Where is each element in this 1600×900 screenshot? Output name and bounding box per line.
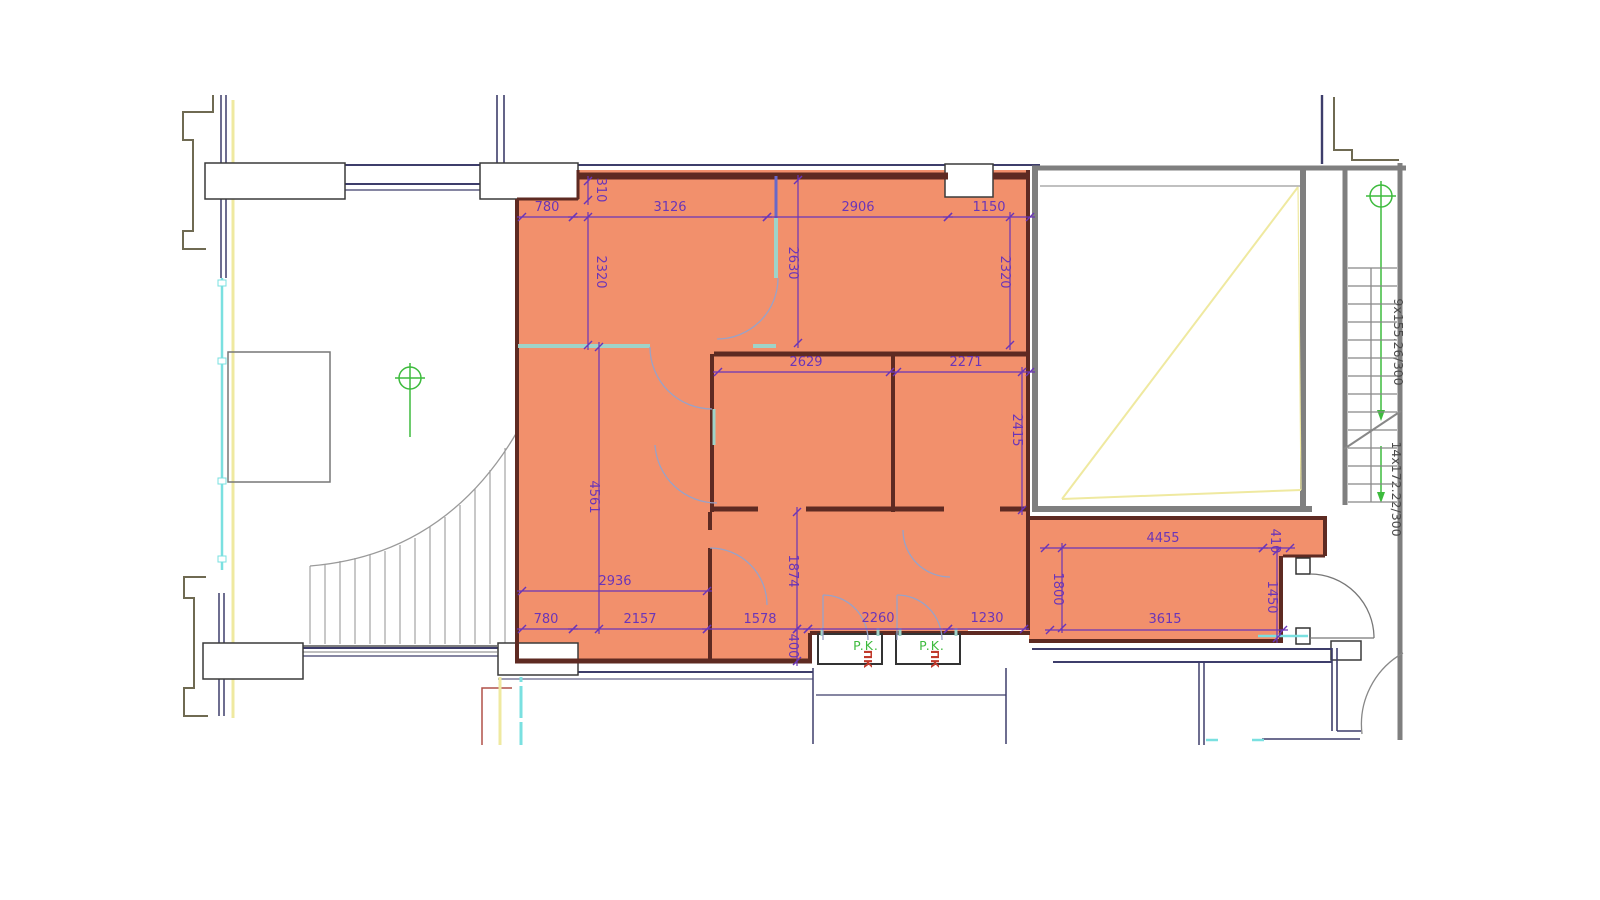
dimension-label: 1150 — [972, 200, 1005, 215]
dimension-label: 1450 — [1264, 580, 1279, 613]
dimension-label: 4455 — [1146, 531, 1179, 546]
fold-mark-yellow — [1062, 187, 1298, 499]
dimension-label: 410 — [1267, 529, 1282, 554]
dimension-label: 2157 — [623, 612, 656, 627]
neighbor-door-arc — [1361, 653, 1403, 734]
survey-marker-left — [395, 363, 425, 437]
dimension-label: 3126 — [653, 200, 686, 215]
dimension-label: 400 — [785, 634, 800, 659]
dimension-label: 2260 — [861, 611, 894, 626]
stair-formula-lower: 14x172.22/300 — [1389, 441, 1404, 536]
dimension: 310 — [584, 176, 608, 205]
dimension-label: 4561 — [586, 480, 601, 513]
dimension-label: 2630 — [785, 246, 800, 279]
dimension-label: 2415 — [1009, 413, 1024, 446]
vent-sub-right: ПК — [928, 650, 941, 668]
stair-formula-upper: 9x155.26/300 — [1391, 298, 1406, 385]
dimension-label: 1800 — [1050, 572, 1065, 605]
survey-marker-stair — [1366, 181, 1396, 211]
dimension-label: 310 — [593, 178, 608, 203]
floor-plan-canvas: P.K. P.K. ПК ПК — [0, 0, 1600, 900]
dimension-label: 2320 — [997, 255, 1012, 288]
stair-curve-edge — [310, 432, 517, 566]
facade-profile-top-right — [1334, 97, 1399, 160]
dimension-label: 780 — [535, 200, 560, 215]
dimension-label: 3615 — [1148, 612, 1181, 627]
dimension-label: 1230 — [970, 611, 1003, 626]
dimension-label: 1578 — [743, 612, 776, 627]
dimension-label: 2629 — [789, 355, 822, 370]
wing-lower-band — [1032, 649, 1332, 662]
dimension-label: 2906 — [841, 200, 874, 215]
balcony-rails — [482, 668, 1006, 745]
dimension-label: 2936 — [598, 574, 631, 589]
dimension-label: 1874 — [785, 554, 800, 587]
shaft-box — [228, 352, 330, 482]
dimension-label: 2320 — [593, 255, 608, 288]
dimension-label: 2271 — [949, 355, 982, 370]
dimension-label: 780 — [534, 612, 559, 627]
apartment-main-fill — [515, 170, 1030, 662]
left-hall — [228, 352, 425, 482]
highlighted-apartment-fill — [515, 170, 1327, 662]
utility-red-line — [482, 688, 512, 745]
vent-sub-left: ПК — [861, 650, 874, 668]
floor-plan-drawing: P.K. P.K. ПК ПК — [0, 0, 1600, 900]
curved-stairs — [237, 432, 517, 652]
entrance-door-arc — [1310, 574, 1374, 638]
